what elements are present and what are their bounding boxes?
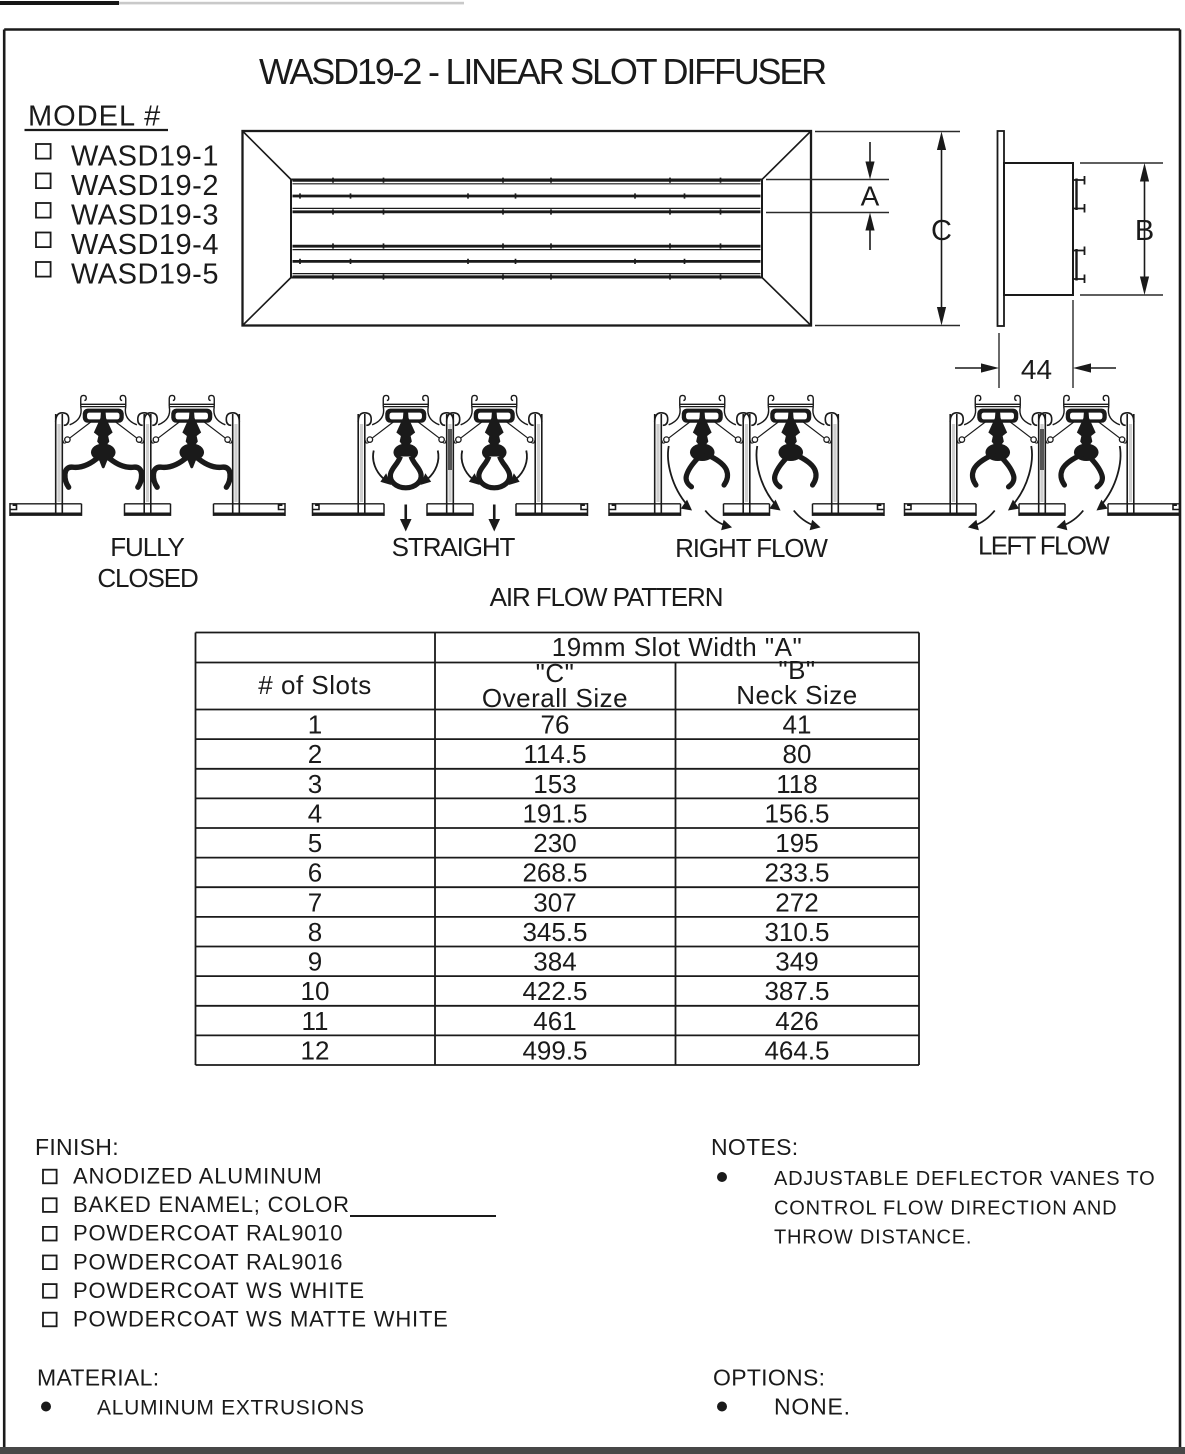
- svg-text:NONE.: NONE.: [774, 1394, 851, 1420]
- svg-text:B: B: [1135, 215, 1154, 247]
- svg-text:BAKED ENAMEL; COLOR: BAKED ENAMEL; COLOR: [73, 1192, 350, 1217]
- svg-text:Overall Size: Overall Size: [482, 683, 628, 713]
- svg-text:ANODIZED ALUMINUM: ANODIZED ALUMINUM: [73, 1164, 323, 1189]
- svg-text:MODEL #: MODEL #: [28, 101, 161, 133]
- svg-text:POWDERCOAT RAL9016: POWDERCOAT RAL9016: [73, 1249, 343, 1274]
- svg-text:272: 272: [775, 887, 818, 917]
- svg-text:NOTES:: NOTES:: [711, 1134, 798, 1160]
- svg-text:345.5: 345.5: [522, 917, 587, 947]
- svg-text:# of Slots: # of Slots: [258, 670, 371, 700]
- svg-text:230: 230: [533, 828, 576, 858]
- svg-text:41: 41: [783, 710, 812, 740]
- svg-text:FINISH:: FINISH:: [35, 1134, 119, 1160]
- svg-text:268.5: 268.5: [522, 858, 587, 888]
- svg-text:6: 6: [308, 858, 322, 888]
- svg-text:RIGHT FLOW: RIGHT FLOW: [675, 533, 828, 563]
- svg-text:MATERIAL:: MATERIAL:: [37, 1365, 159, 1391]
- svg-text:CLOSED: CLOSED: [97, 563, 198, 593]
- svg-text:WASD19-4: WASD19-4: [71, 229, 219, 261]
- svg-text:ALUMINUM EXTRUSIONS: ALUMINUM EXTRUSIONS: [97, 1397, 365, 1420]
- svg-text:3: 3: [308, 769, 322, 799]
- svg-text:191.5: 191.5: [522, 798, 587, 828]
- svg-text:C: C: [931, 215, 952, 247]
- svg-text:9: 9: [308, 947, 322, 977]
- svg-text:349: 349: [775, 947, 818, 977]
- svg-text:387.5: 387.5: [764, 976, 829, 1006]
- svg-text:4: 4: [308, 798, 322, 828]
- svg-text:WASD19-1: WASD19-1: [71, 141, 219, 173]
- svg-text:307: 307: [533, 887, 576, 917]
- svg-text:OPTIONS:: OPTIONS:: [713, 1365, 825, 1391]
- svg-text:7: 7: [308, 887, 322, 917]
- svg-text:233.5: 233.5: [764, 858, 829, 888]
- svg-text:464.5: 464.5: [764, 1035, 829, 1065]
- svg-text:WASD19-3: WASD19-3: [71, 200, 219, 232]
- svg-text:ADJUSTABLE DEFLECTOR VANES TO: ADJUSTABLE DEFLECTOR VANES TO: [774, 1168, 1155, 1190]
- svg-text:WASD19-2: WASD19-2: [71, 170, 219, 202]
- svg-text:461: 461: [533, 1006, 576, 1036]
- svg-text:FULLY: FULLY: [110, 532, 184, 562]
- svg-text:Neck Size: Neck Size: [736, 680, 858, 710]
- svg-text:310.5: 310.5: [764, 917, 829, 947]
- svg-text:CONTROL FLOW DIRECTION AND: CONTROL FLOW DIRECTION AND: [774, 1198, 1117, 1220]
- svg-text:44: 44: [1021, 354, 1052, 385]
- svg-text:WASD19-5: WASD19-5: [71, 259, 219, 291]
- svg-text:384: 384: [533, 947, 576, 977]
- svg-text:2: 2: [308, 739, 322, 769]
- svg-text:80: 80: [783, 739, 812, 769]
- svg-text:19mm Slot Width "A": 19mm Slot Width "A": [552, 632, 802, 662]
- svg-text:422.5: 422.5: [522, 976, 587, 1006]
- svg-text:426: 426: [775, 1006, 818, 1036]
- svg-text:114.5: 114.5: [523, 739, 586, 769]
- svg-text:POWDERCOAT RAL9010: POWDERCOAT RAL9010: [73, 1221, 343, 1246]
- svg-text:195: 195: [775, 828, 818, 858]
- svg-text:A: A: [861, 181, 880, 212]
- svg-text:118: 118: [776, 769, 817, 799]
- svg-text:8: 8: [308, 917, 322, 947]
- svg-text:WASD19-2 - LINEAR SLOT DIFFUSE: WASD19-2 - LINEAR SLOT DIFFUSER: [259, 51, 826, 92]
- svg-text:1: 1: [308, 710, 322, 740]
- svg-text:153: 153: [533, 769, 576, 799]
- svg-text:11: 11: [302, 1006, 329, 1036]
- svg-text:THROW DISTANCE.: THROW DISTANCE.: [774, 1227, 972, 1249]
- svg-text:156.5: 156.5: [764, 798, 829, 828]
- svg-text:76: 76: [541, 710, 570, 740]
- svg-text:POWDERCOAT WS WHITE: POWDERCOAT WS WHITE: [73, 1278, 365, 1303]
- svg-text:LEFT FLOW: LEFT FLOW: [978, 531, 1110, 561]
- svg-text:STRAIGHT: STRAIGHT: [392, 532, 516, 562]
- svg-text:10: 10: [301, 976, 330, 1006]
- svg-text:POWDERCOAT WS MATTE WHITE: POWDERCOAT WS MATTE WHITE: [73, 1307, 449, 1332]
- svg-text:AIR FLOW PATTERN: AIR FLOW PATTERN: [490, 582, 723, 612]
- svg-text:12: 12: [301, 1035, 330, 1065]
- svg-text:499.5: 499.5: [522, 1035, 587, 1065]
- svg-text:5: 5: [308, 828, 322, 858]
